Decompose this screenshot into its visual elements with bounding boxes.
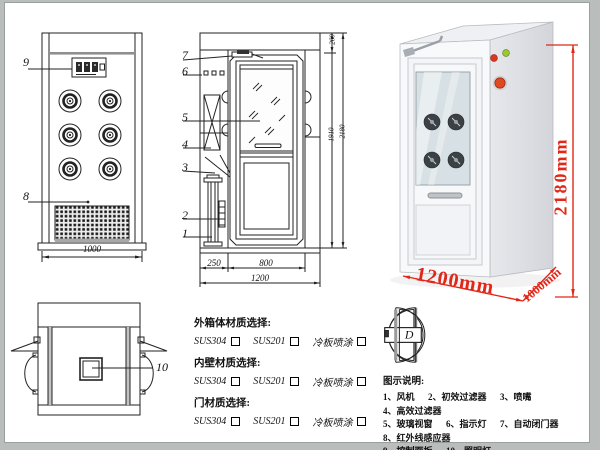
photo-dim-height: 2180mm [551, 112, 572, 242]
legend-item: 4、高效过滤器 [383, 406, 442, 416]
legend-item: 5、玻璃视窗 [383, 419, 433, 429]
door-handle [428, 193, 462, 198]
legend-item: 3、喷嘴 [500, 392, 532, 402]
material-option: SUS304 [194, 416, 240, 427]
material-group-title: 内壁材质选择: [194, 355, 364, 370]
material-option-label: SUS201 [253, 336, 285, 347]
legend-line: 5、玻璃视窗 6、指示灯 7、自动闭门器 8、红外线感应器 [383, 417, 591, 444]
door-option-letter: D [404, 328, 414, 342]
legend-title: 图示说明: [383, 373, 591, 387]
air-return-grille [55, 206, 129, 242]
top-view-drawing [10, 295, 180, 430]
material-checkbox[interactable] [357, 337, 366, 346]
material-group-title: 外箱体材质选择: [194, 315, 364, 330]
material-option-label: SUS304 [194, 376, 226, 387]
material-option: SUS201 [253, 376, 299, 387]
front-label-grille: 8 [23, 190, 29, 202]
side-dim-2180: 2180 [340, 119, 347, 145]
material-option: 冷板喷涂 [312, 414, 366, 429]
side-label-fan: 1 [182, 227, 188, 239]
green-indicator-light [503, 50, 510, 57]
side-dim-1910: 1910 [329, 122, 336, 148]
material-options-row: SUS304 SUS201 冷板喷涂 [194, 374, 364, 389]
material-option-label: 冷板喷涂 [312, 374, 352, 389]
material-checkbox[interactable] [231, 417, 240, 426]
material-option-label: SUS304 [194, 416, 226, 427]
material-group-title: 门材质选择: [194, 395, 364, 410]
material-option: 冷板喷涂 [312, 374, 366, 389]
side-view-drawing [175, 25, 355, 295]
material-option-label: SUS201 [253, 376, 285, 387]
material-option: SUS304 [194, 376, 240, 387]
cabinet-door [408, 58, 482, 265]
red-indicator-light [491, 55, 498, 62]
material-selection: 外箱体材质选择: SUS304 SUS201 冷板喷涂 内壁材质选择: SUS3… [194, 315, 364, 435]
material-option: SUS304 [194, 336, 240, 347]
door-swing-option-d: D [383, 301, 423, 369]
material-checkbox[interactable] [290, 377, 299, 386]
side-label-indicators: 6 [182, 65, 188, 77]
side-label-prefilter: 2 [182, 209, 188, 221]
material-checkbox[interactable] [231, 377, 240, 386]
legend-item: 1、风机 [383, 392, 415, 402]
material-checkbox[interactable] [357, 417, 366, 426]
top-view-label-lamp: 10 [156, 361, 168, 373]
material-checkbox[interactable] [290, 417, 299, 426]
emergency-button [495, 78, 505, 88]
material-checkbox[interactable] [357, 377, 366, 386]
legend-line: 1、风机 2、初效过滤器 3、喷嘴 4、高效过滤器 [383, 390, 591, 417]
material-option-label: SUS201 [253, 416, 285, 427]
material-option: 冷板喷涂 [312, 334, 366, 349]
control-panel [72, 58, 106, 77]
material-options-row: SUS304 SUS201 冷板喷涂 [194, 334, 364, 349]
side-label-hepa: 4 [182, 138, 188, 150]
material-checkbox[interactable] [231, 337, 240, 346]
front-view-drawing [20, 25, 165, 270]
legend: 图示说明: 1、风机 2、初效过滤器 3、喷嘴 4、高效过滤器 5、玻璃视窗 6… [383, 373, 591, 450]
side-label-nozzle: 3 [182, 161, 188, 173]
material-options-row: SUS304 SUS201 冷板喷涂 [194, 414, 364, 429]
side-label-glass: 5 [182, 111, 188, 123]
legend-item: 10、照明灯 [446, 446, 491, 450]
side-label-door-closer: 7 [182, 49, 188, 61]
material-option: SUS201 [253, 336, 299, 347]
door-swing-options: A B C [383, 301, 563, 371]
open-door-left [11, 337, 40, 394]
material-option-label: 冷板喷涂 [312, 414, 352, 429]
legend-item: 8、红外线感应器 [383, 433, 451, 443]
legend-item: 6、指示灯 [446, 419, 487, 429]
material-option-label: SUS304 [194, 336, 226, 347]
legend-item: 7、自动闭门器 [500, 419, 559, 429]
side-dim-800: 800 [251, 259, 281, 268]
front-label-control-panel: 9 [23, 56, 29, 68]
legend-item: 2、初效过滤器 [428, 392, 487, 402]
material-checkbox[interactable] [290, 337, 299, 346]
side-dim-1200: 1200 [240, 274, 280, 283]
material-option: SUS201 [253, 416, 299, 427]
legend-item: 9、控制面板 [383, 446, 433, 450]
legend-line: 9、控制面板 10、照明灯 [383, 444, 591, 450]
material-option-label: 冷板喷涂 [312, 334, 352, 349]
side-dim-250: 250 [199, 259, 229, 268]
side-dim-260: 260 [330, 29, 337, 51]
blueprint-page: 9 8 1000 [0, 0, 600, 450]
front-dim-width: 1000 [72, 245, 112, 254]
